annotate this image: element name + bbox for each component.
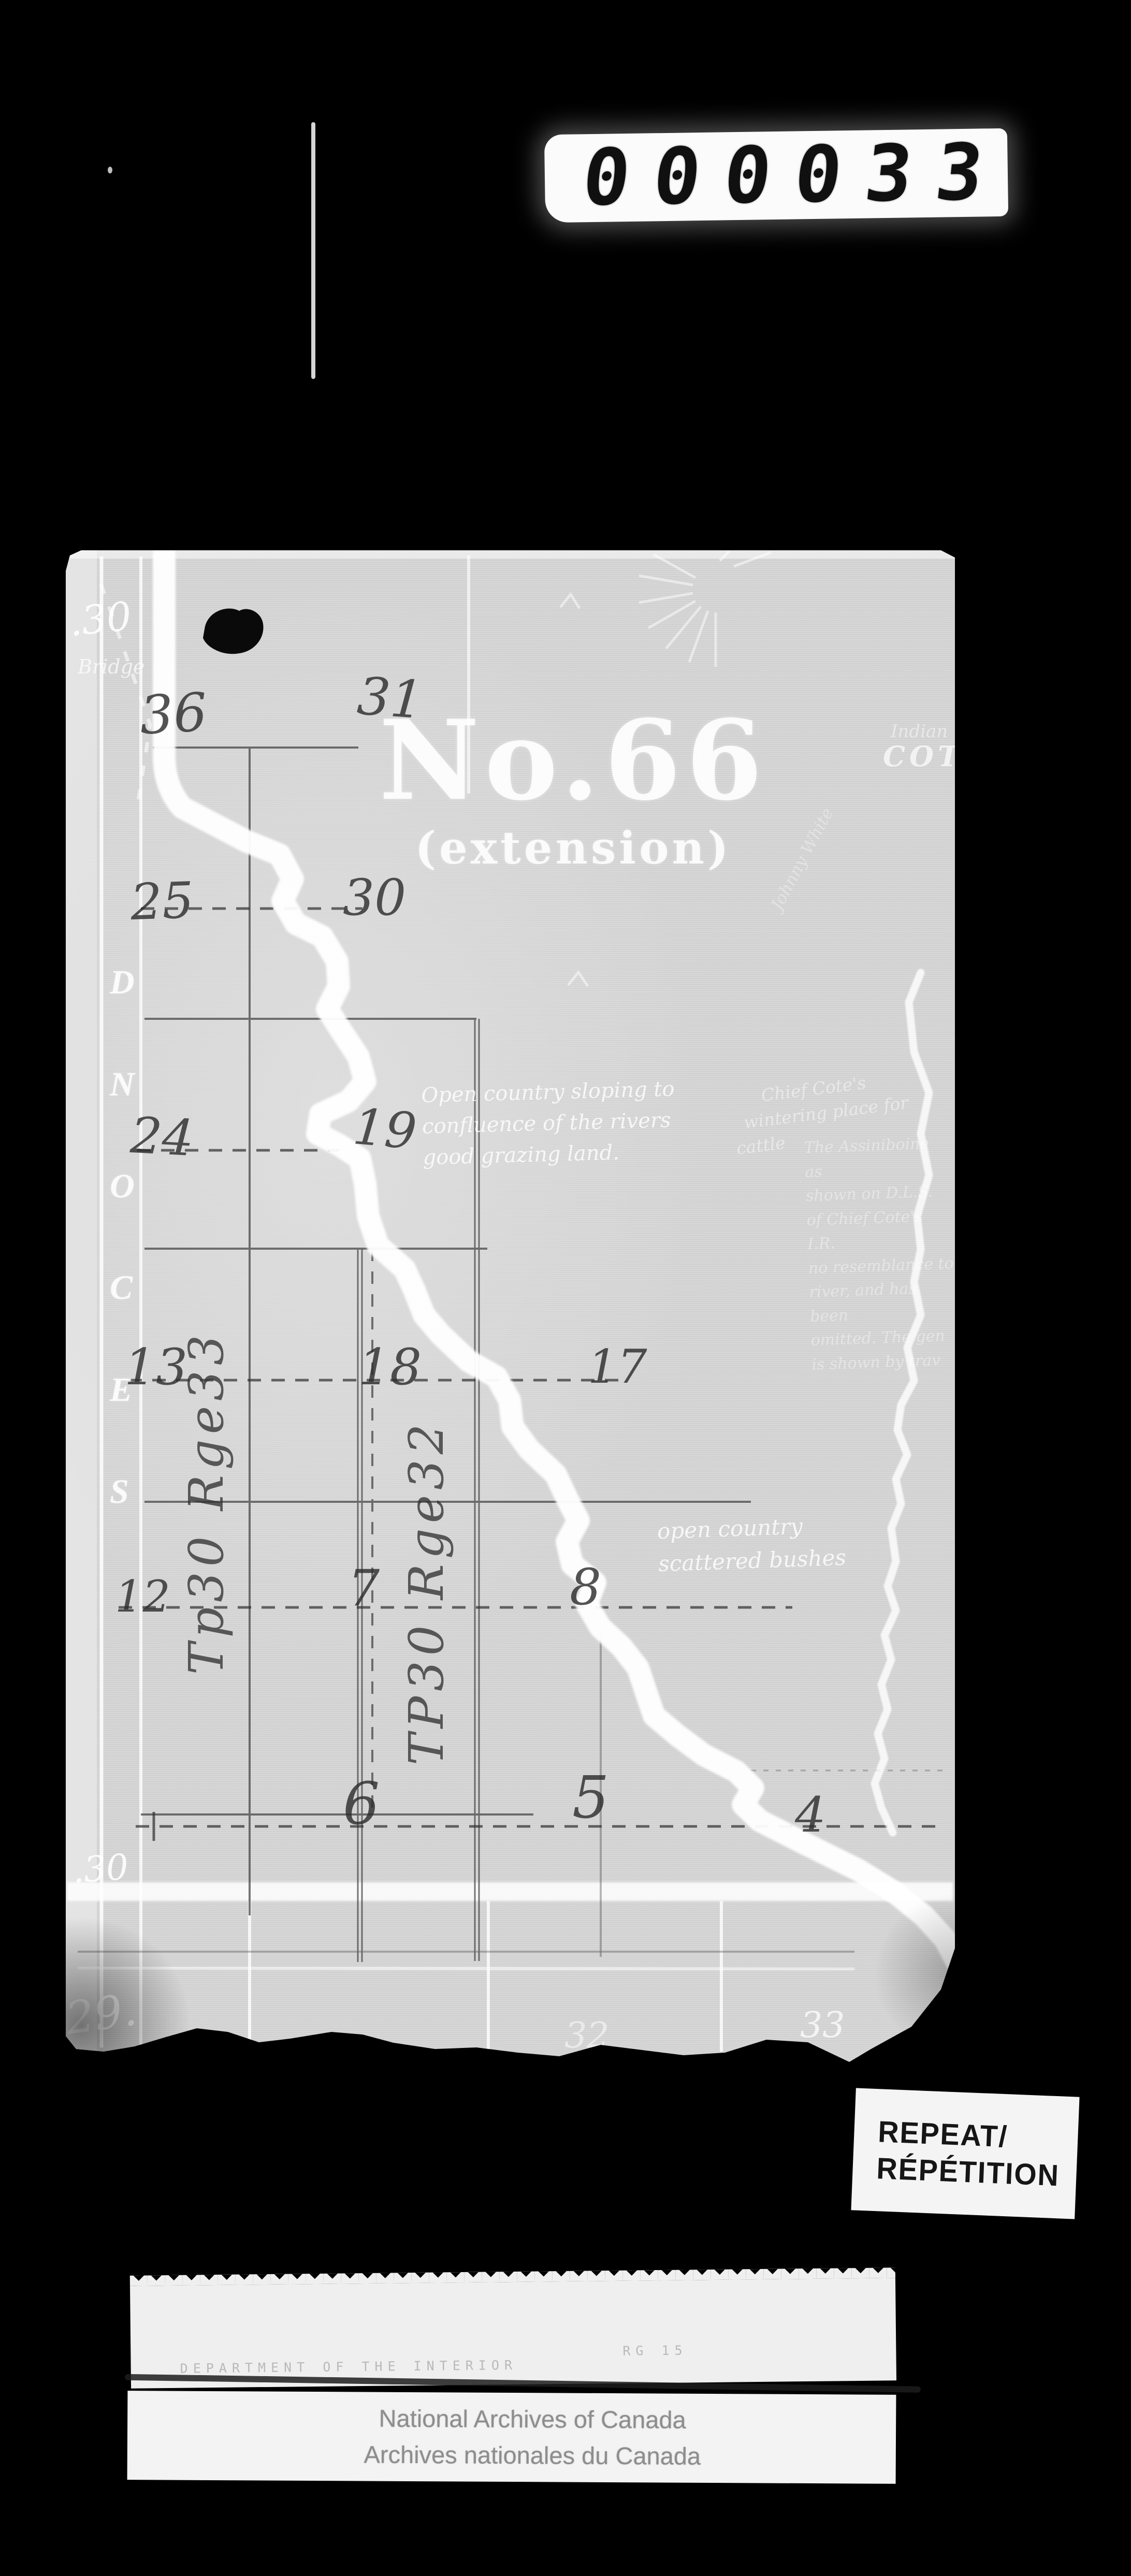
township-label-left: Tp30 Rge33 <box>179 1152 234 1675</box>
map-sheet: No.66 (extension) SECOND .30 Bridge Indi… <box>66 550 955 2067</box>
annotation-line: scattered bushes <box>658 1541 847 1580</box>
section-number-13: 13 <box>124 1338 187 1396</box>
map-subtitle: (extension) <box>314 822 832 874</box>
meridian-letter: N <box>110 1065 135 1104</box>
section-number-7: 7 <box>348 1559 380 1617</box>
meridian-letter: O <box>110 1167 135 1206</box>
perforation-edge <box>130 2267 895 2286</box>
indian-reserve-label: Indian <box>891 721 948 742</box>
annotation-line: good grazing land. <box>423 1136 677 1174</box>
printed-number-30-top: .30 <box>67 593 134 645</box>
printed-number-30-bottom: .30 <box>71 1847 129 1891</box>
annotation-scattered: open country scattered bushes <box>657 1509 847 1580</box>
section-number-30: 30 <box>343 869 406 927</box>
repeat-stamp: REPEAT/ RÉPÉTITION <box>851 2088 1079 2219</box>
printed-number-32: 32 <box>564 2015 610 2056</box>
archives-footer: National Archives of Canada Archives nat… <box>127 2391 896 2484</box>
section-number-12: 12 <box>115 1571 170 1622</box>
section-number-4: 4 <box>795 1787 826 1843</box>
archives-footer-fr: Archives nationales du Canada <box>169 2436 896 2476</box>
section-number-5: 5 <box>572 1764 609 1832</box>
section-number-36: 36 <box>138 682 209 747</box>
frame-counter: 000033 <box>544 128 1008 223</box>
film-scratch-line <box>311 122 315 379</box>
archives-footer-en: National Archives of Canada <box>169 2399 896 2439</box>
frame-counter-value: 000033 <box>540 127 1012 224</box>
annotation-line: shown on D.L.S. <box>805 1179 953 1208</box>
bridge-label: Bridge <box>78 655 144 678</box>
section-number-6: 6 <box>343 1770 380 1838</box>
printed-number-33: 33 <box>800 2005 845 2046</box>
printed-number-29: 29. <box>66 1984 140 2045</box>
cote-label: COTE <box>883 740 955 773</box>
section-number-8: 8 <box>570 1558 601 1616</box>
meridian-letter: C <box>110 1268 135 1308</box>
ink-blob <box>203 608 264 654</box>
annotation-line: confluence of the rivers <box>422 1105 676 1143</box>
annotation-line: is shown by trav <box>811 1348 955 1377</box>
township-label-middle: TP30 Rge32 <box>399 1279 454 1765</box>
target-card: DEPARTMENT OF THE INTERIOR MINISTÈRE DE … <box>130 2278 896 2388</box>
microfilm-frame: 000033 <box>0 0 1131 2576</box>
target-card-ref1: RG 15 <box>622 2340 701 2362</box>
repeat-stamp-line2: RÉPÉTITION <box>876 2150 1069 2195</box>
section-number-17: 17 <box>588 1340 647 1394</box>
meridian-letter: S <box>110 1472 135 1512</box>
annotation-assiniboine: The Assiniboine as shown on D.L.S. of Ch… <box>804 1131 955 1377</box>
section-number-19: 19 <box>351 1097 418 1161</box>
annotation-line: of Chief Cote's I.R. <box>806 1204 955 1257</box>
annotation-line: no resemblance to <box>808 1252 955 1281</box>
annotation-open-country: Open country sloping to confluence of th… <box>421 1074 677 1174</box>
annotation-line: The Assiniboine as <box>804 1131 952 1184</box>
annotation-line: river, and has been <box>809 1276 955 1329</box>
film-speck <box>108 167 112 173</box>
meridian-label: SECOND <box>110 963 135 1512</box>
sunburst-icon <box>639 551 771 667</box>
meridian-letter: D <box>110 963 135 1002</box>
section-number-31: 31 <box>355 666 425 731</box>
section-number-25: 25 <box>129 871 195 931</box>
